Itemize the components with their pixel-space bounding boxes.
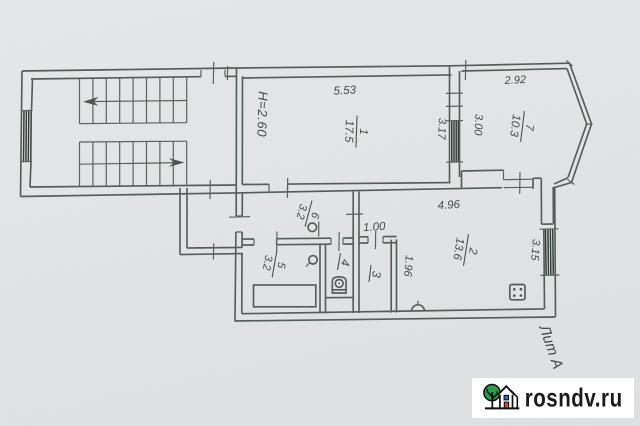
svg-text:rosndv.ru: rosndv.ru xyxy=(525,383,623,412)
